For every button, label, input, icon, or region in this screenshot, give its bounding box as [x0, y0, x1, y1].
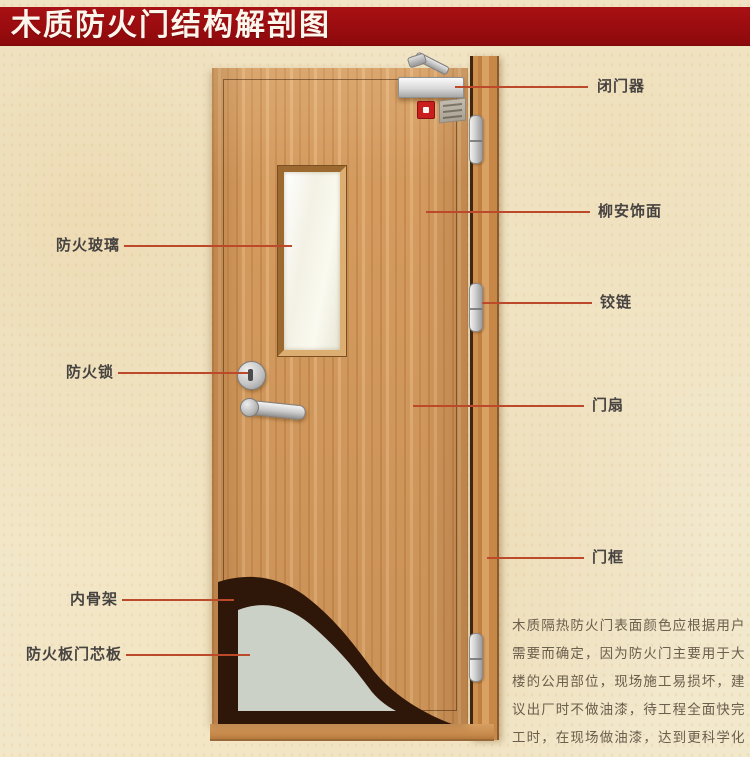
label-lauan-veneer: 柳安饰面 — [598, 204, 662, 220]
fire-lock-cylinder — [237, 361, 266, 390]
door-plaque — [439, 98, 466, 124]
leader-line-fire-glass — [124, 245, 292, 247]
diagram-canvas: 木质防火门结构解剖图 闭门器 柳安饰面 铰链 门扇 门框 防火 — [0, 0, 750, 757]
door-closer-bracket — [407, 52, 428, 68]
door-handle-rose — [240, 398, 259, 417]
hinge-top — [469, 115, 483, 164]
fire-safety-sign-glyph — [423, 107, 429, 113]
fire-glass-panel — [278, 166, 346, 356]
hinge-middle — [469, 283, 483, 332]
leader-line-inner-skeleton — [122, 599, 234, 601]
page-title: 木质防火门结构解剖图 — [0, 11, 331, 41]
label-fire-glass: 防火玻璃 — [18, 238, 120, 254]
title-banner: 木质防火门结构解剖图 — [0, 7, 750, 46]
leader-line-door-leaf — [413, 405, 584, 407]
label-door-leaf: 门扇 — [592, 398, 624, 414]
label-door-closer: 闭门器 — [597, 79, 645, 95]
label-inner-skeleton: 内骨架 — [18, 592, 118, 608]
door-frame-threshold — [210, 724, 494, 741]
leader-line-door-frame — [487, 557, 584, 559]
leader-line-fire-lock — [118, 372, 248, 374]
leader-line-door-closer — [455, 86, 588, 88]
leader-line-hinge — [482, 302, 592, 304]
label-fire-core-board: 防火板门芯板 — [8, 647, 122, 663]
label-fire-lock: 防火锁 — [18, 365, 114, 381]
label-door-frame: 门框 — [592, 550, 624, 566]
cutaway-section — [212, 560, 468, 724]
label-hinge: 铰链 — [600, 295, 632, 311]
leader-line-lauan-veneer — [426, 211, 590, 213]
hinge-bottom — [469, 633, 483, 682]
leader-line-fire-core-board — [126, 654, 250, 656]
description-paragraph: 木质隔热防火门表面颜色应根据用户需要而确定，因为防火门主要用于大楼的公用部位，现… — [512, 612, 745, 757]
fire-safety-sign — [417, 101, 435, 119]
